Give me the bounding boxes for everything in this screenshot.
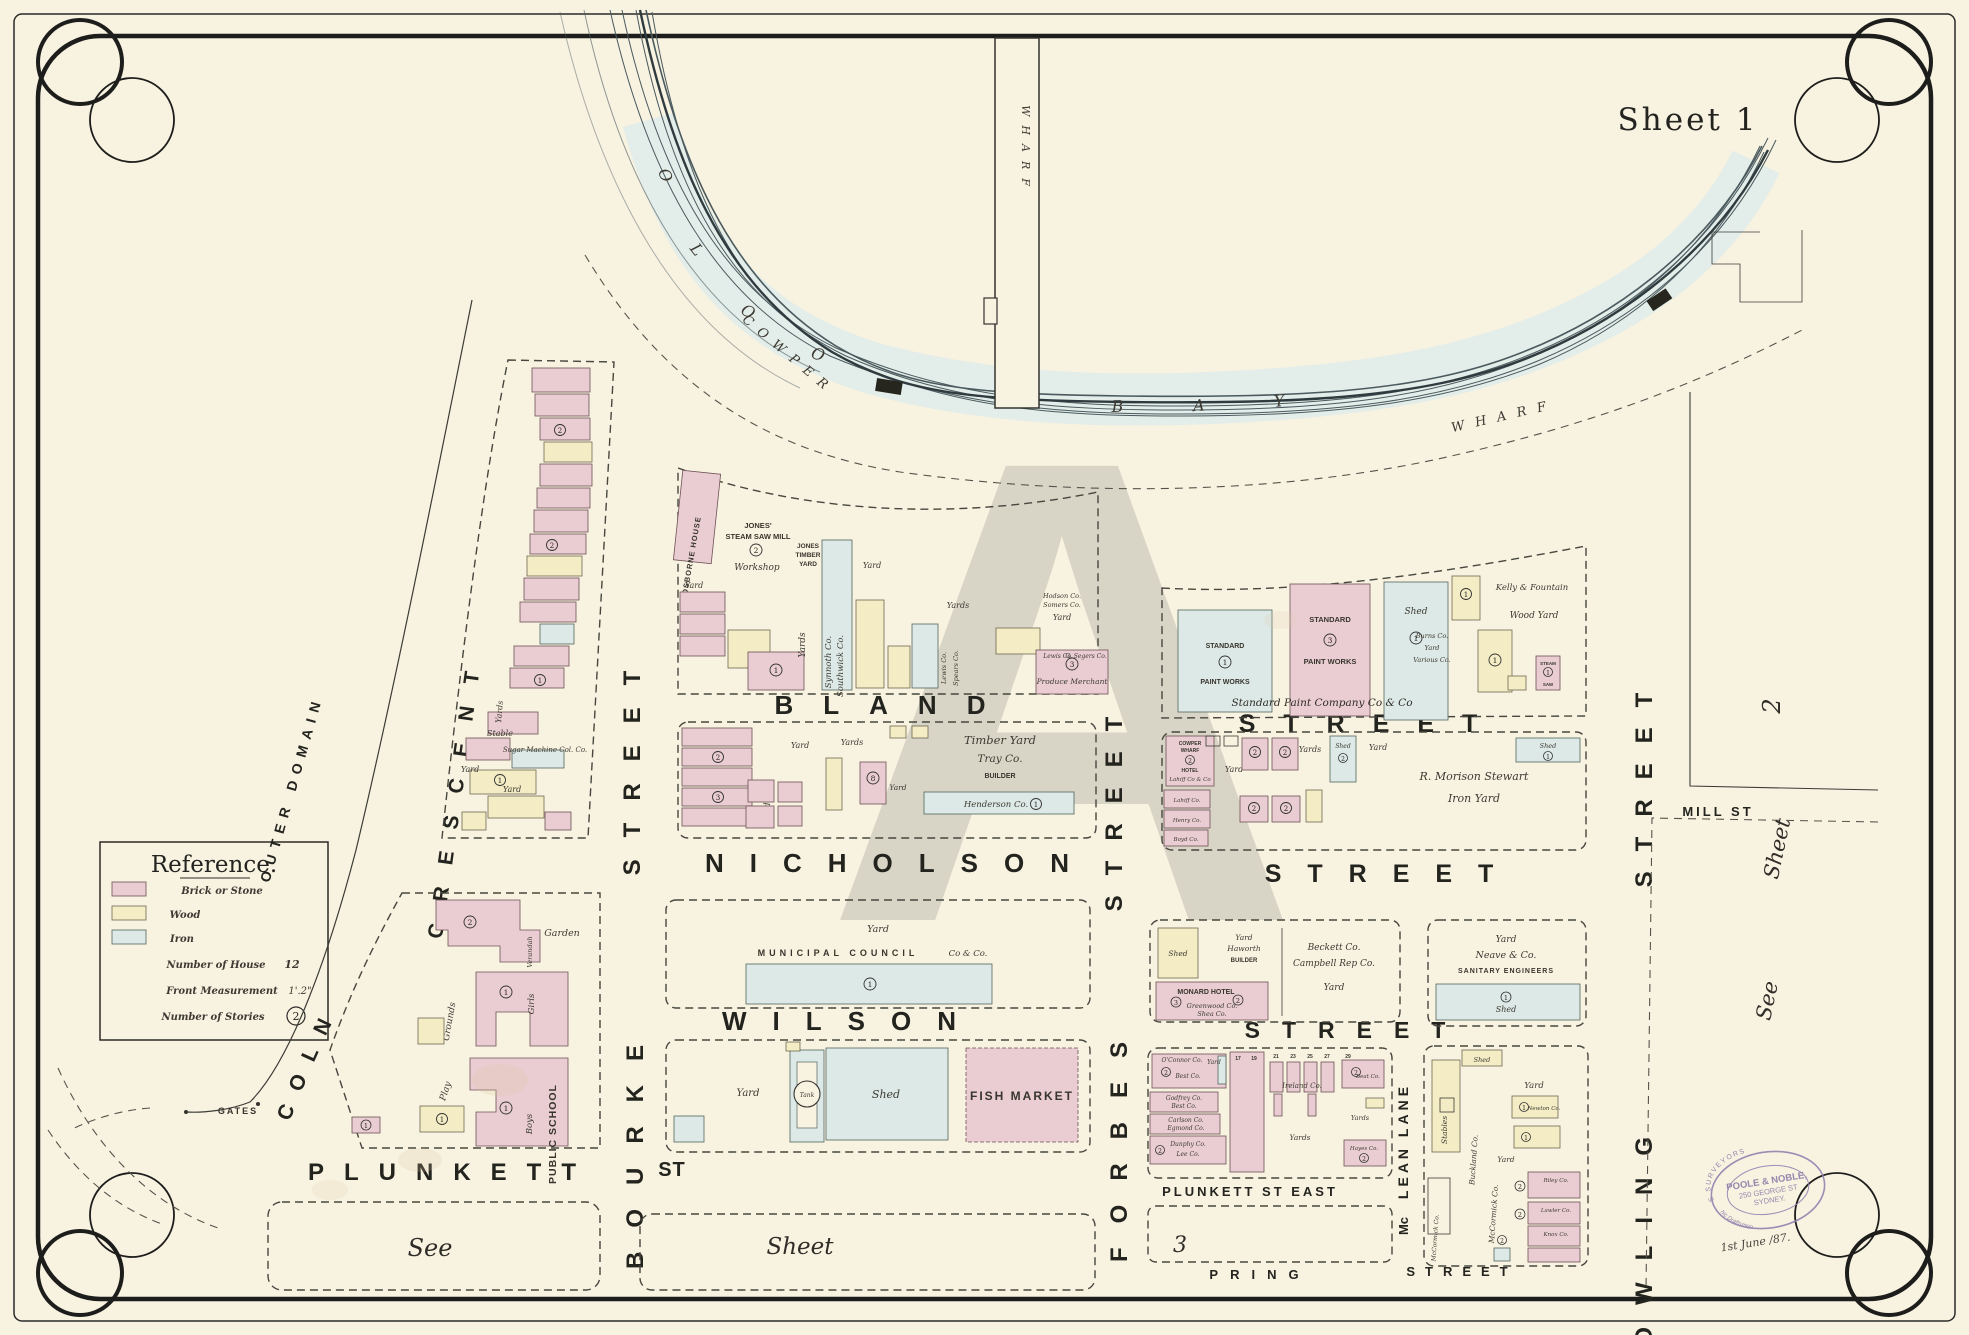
standard-pink-2: PAINT WORKS [1304, 657, 1357, 666]
jones-mill-label1: JONES' [744, 521, 771, 530]
hayes-label: Hayes Co. [1349, 1146, 1378, 1152]
svg-text:2: 2 [1252, 805, 1256, 813]
fish-market-label: FISH MARKET [970, 1089, 1074, 1103]
svg-text:1: 1 [1493, 656, 1498, 665]
steam-saw-label2: SAW [1543, 682, 1554, 687]
shea-label: Shea Co. [1197, 1010, 1226, 1018]
egmond-label: Egmond Co. [1166, 1125, 1204, 1132]
svg-text:1: 1 [774, 666, 779, 675]
boyd-label: Boyd Co. [1173, 837, 1199, 843]
yard-label: Yard [1425, 644, 1440, 652]
plunkett-east-block: O'Connor Co. Yard 2 Best Co. Godfrey Co.… [1148, 1048, 1392, 1178]
campbell-label: Campbell Rep Co. [1293, 959, 1375, 969]
sheet-title: Sheet 1 [1618, 102, 1759, 138]
svg-text:1: 1 [504, 988, 509, 997]
svg-text:1: 1 [1546, 670, 1550, 677]
sheet-east-label: Sheet [1759, 816, 1795, 881]
municipal-council-label: MUNICIPAL COUNCIL [758, 948, 919, 958]
svg-text:2: 2 [1518, 1183, 1522, 1191]
street-label-bourke-street: STREET [619, 649, 646, 876]
lewis-rot-label: Lewis Co. [940, 652, 948, 685]
yard-label: Yard [1324, 983, 1345, 993]
street-label-pring: PRING [1209, 1267, 1310, 1282]
yard-label: Yard [737, 1088, 760, 1099]
svg-text:1: 1 [1524, 1135, 1528, 1142]
southwick-label: Southwick Co. [836, 635, 846, 697]
yard-label: Yard [503, 785, 521, 794]
crescent-plots [462, 368, 592, 830]
house-number: 21 [1273, 1054, 1279, 1060]
jones-timber-label1: JONES [797, 543, 820, 550]
neave-block: Yard Neave & Co. SANITARY ENGINEERS 1 Sh… [1428, 920, 1586, 1026]
produce-merchant-label: Produce Merchant [1036, 677, 1109, 686]
yard-label: Yard [1207, 1059, 1221, 1066]
standard-blue-1: STANDARD [1206, 643, 1245, 650]
corner-ornament-top-left [38, 20, 174, 162]
house-number: 27 [1324, 1054, 1330, 1060]
carlson-label: Carlson Co. [1168, 1117, 1204, 1124]
shed-label: Shed [1404, 607, 1427, 617]
yards-label: Yards [841, 738, 863, 747]
street-label-mill-st: MILL ST [1682, 804, 1753, 819]
legend-front-val: 1'.2" [288, 986, 311, 997]
svg-text:1: 1 [1504, 994, 1508, 1002]
shed-label: Shed [872, 1088, 900, 1101]
cowper-hotel-label3: HOTEL [1182, 768, 1199, 774]
svg-text:2: 2 [754, 546, 759, 555]
svg-text:1: 1 [538, 677, 542, 685]
see-east-label: See [1751, 979, 1783, 1022]
newton-label: Newton Co. [1527, 1106, 1561, 1112]
svg-text:2: 2 [716, 754, 720, 762]
street-label-pring-street: STREET [1406, 1264, 1517, 1279]
svg-text:1: 1 [498, 777, 502, 785]
tank-label: Tank [800, 1092, 815, 1099]
legend-swatch-wood [112, 906, 146, 920]
legend-house-label: Number of House [166, 960, 266, 971]
street-label-mclean-lane: LANE [1395, 1083, 1411, 1137]
shed-label: Shed [1540, 742, 1557, 750]
svg-text:2: 2 [1518, 1211, 1522, 1219]
crescent-block: 2 2 1 1 Stable Sugar Machine Col. Co. Ya… [442, 360, 614, 838]
morrison-stewart-label: R. Morison Stewart [1419, 770, 1529, 783]
svg-text:2: 2 [1283, 749, 1287, 757]
svg-text:2: 2 [1253, 749, 1257, 757]
standard-pink-1: STANDARD [1309, 615, 1351, 624]
wood-yard-label: Wood Yard [1510, 611, 1559, 621]
svg-text:1: 1 [1522, 1105, 1526, 1112]
pier-wharf-label: WHARF [1019, 105, 1032, 195]
haworth-label: Haworth [1226, 944, 1261, 953]
public-school-block: 2 Verandah Garden Grounds Play 1 1 Girls… [330, 893, 600, 1184]
somers-label: Somers Co. [1043, 601, 1081, 609]
svg-text:2: 2 [1158, 1148, 1162, 1155]
stamp-date: 1st June /87. [1720, 1231, 1792, 1255]
yard-label: Yard [1496, 935, 1517, 945]
wharf-road-label: WHARF [1450, 397, 1559, 436]
best-label: Best Co. [1174, 1073, 1200, 1080]
iron-yard-label: Iron Yard [1447, 792, 1500, 805]
svg-text:8: 8 [871, 774, 876, 783]
best2-label: Best Co. [1170, 1103, 1196, 1110]
svg-text:2: 2 [1362, 1156, 1366, 1163]
street-label-dowling: DOWLING [1631, 1115, 1658, 1335]
shed-label: Shed [1335, 743, 1351, 750]
public-school-label: PUBLIC SCHOOL [547, 1084, 559, 1184]
yards-label: Yards [1351, 1114, 1370, 1122]
mccormick-label: McCormick Co. [1487, 1184, 1500, 1244]
svg-text:2: 2 [1164, 1070, 1168, 1077]
reference-legend: Reference. Brick or Stone Wood Iron Numb… [100, 842, 328, 1040]
street-label-mclean-mc: Mc [1396, 1217, 1411, 1235]
shed-label: Shed [1168, 949, 1187, 958]
oconnor-label: O'Connor Co. [1162, 1057, 1203, 1064]
play-label: Play [438, 1080, 454, 1103]
street-label-wilson-street: STREET [1245, 1017, 1468, 1043]
yard-label: Yard [1053, 613, 1071, 622]
godfrey-label: Godfrey Co. [1166, 1095, 1202, 1102]
cowper-hotel-label1: COWPER [1179, 741, 1202, 747]
house-number: 29 [1345, 1054, 1351, 1060]
street-label-forbes: FORBES [1106, 1018, 1133, 1262]
dunphy-label: Dunphy Co. [1169, 1141, 1206, 1148]
two-label: 2 [1758, 698, 1786, 714]
hodson-label: Hodson Co. [1042, 592, 1081, 600]
street-label-plunkett-st: ST [658, 1159, 686, 1181]
house-number: 23 [1290, 1054, 1296, 1060]
street-label-wilson: WILSON [722, 1006, 982, 1036]
svg-text:1: 1 [364, 1122, 368, 1130]
builder-label: BUILDER [984, 773, 1015, 780]
lawler-label: Lawler Co. [1540, 1208, 1571, 1214]
sheet-west-label: Sheet [766, 1234, 834, 1260]
mclean-east-block: Shed Stables Buckland Co. McCormick Co. … [1424, 1046, 1588, 1266]
riley-label: Riley Co. [1543, 1178, 1569, 1184]
sugar-machine-label: Sugar Machine Col. Co. [503, 746, 587, 754]
timber-yard-label: Timber Yard [964, 733, 1036, 747]
legend-front-label: Front Measurement [165, 986, 278, 997]
svg-text:2: 2 [1500, 1238, 1504, 1245]
yard-label: Yard [863, 561, 881, 570]
legend-house-num: 12 [284, 958, 300, 971]
mccormick-small-label: McCormick Co. [1430, 1214, 1440, 1263]
svg-text:2: 2 [468, 918, 473, 927]
svg-text:2: 2 [558, 427, 562, 435]
yard-label: Yard [1524, 1081, 1544, 1091]
tray-co-label: Tray Co. [977, 753, 1022, 765]
svg-text:1: 1 [1223, 658, 1228, 667]
yards-label: Yards [1299, 745, 1321, 754]
builder-label: BUILDER [1231, 958, 1258, 964]
legend-iron-label: Iron [169, 934, 194, 945]
svg-text:1: 1 [1546, 754, 1550, 761]
yard-label: Yard [1235, 933, 1252, 942]
street-label-dowling-street: STREET [1631, 673, 1658, 888]
henry-label: Henry Co. [1172, 818, 1202, 824]
house-number: 19 [1251, 1056, 1257, 1062]
monard-hotel-label: MONARD HOTEL [1177, 989, 1235, 996]
segers-label: G. Segers Co. [1065, 653, 1106, 660]
street-label-nicholson: NICHOLSON [705, 848, 1095, 878]
henderson-label: Henderson Co. [963, 800, 1028, 810]
lee-label: Lee Co. [1176, 1151, 1200, 1158]
spears-rot-label: Spears Co. [952, 650, 960, 686]
svg-text:2: 2 [1341, 756, 1345, 763]
neave-label: Neave & Co. [1475, 950, 1537, 961]
map-sheet: A WHARF WOOLLOOMOOLOO BAY COWPER WHARF S… [0, 0, 1969, 1335]
yard-label: Yard [685, 581, 703, 590]
svg-text:3: 3 [1174, 999, 1178, 1007]
jones-timber-label3: YARD [799, 561, 817, 568]
svg-text:1: 1 [504, 1104, 509, 1113]
sanitary-engineers-label: SANITARY ENGINEERS [1458, 968, 1554, 975]
standard-blue-2: PAINT WORKS [1200, 679, 1250, 686]
municipal-co-label: Co & Co. [949, 949, 988, 959]
house-number: 25 [1307, 1054, 1313, 1060]
lahiff-label: Lahiff Co & Co [1168, 777, 1211, 783]
beckett-label: Beckett Co. [1307, 943, 1361, 953]
see-west-label: See [408, 1234, 453, 1262]
legend-swatch-brick [112, 882, 146, 896]
street-label-forbes-street: STREET [1101, 697, 1128, 912]
svg-text:3: 3 [1328, 636, 1333, 645]
map-canvas: A WHARF WOOLLOOMOOLOO BAY COWPER WHARF S… [0, 0, 1969, 1335]
various-label: Various Co. [1413, 656, 1451, 664]
corner-ornament-bottom-right [1795, 1173, 1931, 1315]
svg-text:3: 3 [1070, 660, 1075, 669]
shed-label: Shed [1474, 1056, 1491, 1064]
lahiff2-label: Lahiff Co. [1172, 798, 1200, 804]
street-label-plunkett-east: PLUNKETT ST EAST [1162, 1184, 1338, 1199]
beat-label: Beat Co. [1355, 1074, 1380, 1080]
girls-label: Girls [527, 993, 537, 1014]
boys-label: Boys [525, 1113, 535, 1135]
street-label-mclean-lean: LEAN [1395, 1145, 1411, 1199]
svg-text:2: 2 [1188, 758, 1192, 765]
legend-swatch-iron [112, 930, 146, 944]
garden-label: Garden [544, 928, 580, 939]
yards-label: Yards [947, 601, 969, 610]
knox-label: Knox Co. [1543, 1232, 1569, 1238]
svg-text:2: 2 [1284, 805, 1288, 813]
house-number: 17 [1235, 1056, 1241, 1062]
yard-label: Yard [1225, 765, 1243, 774]
stable-label: Stable [487, 729, 513, 738]
stables-label: Stables [1440, 1116, 1449, 1144]
svg-text:1: 1 [1464, 591, 1468, 599]
legend-wood-label: Wood [170, 910, 201, 921]
svg-text:3: 3 [716, 794, 720, 802]
street-label-bland-street: STREET [1239, 710, 1506, 738]
fish-market-block: Yard Tank Shed FISH MARKET [666, 1040, 1090, 1152]
yard-label: Yard [867, 924, 889, 935]
legend-stories-val: 2 [293, 1010, 300, 1023]
shed-label: Shed [1496, 1005, 1517, 1014]
ireland-label: Ireland Co. [1281, 1082, 1322, 1090]
legend-stories-label: Number of Stories [160, 1012, 264, 1023]
three-label: 3 [1173, 1233, 1187, 1258]
synnoth-label: Synnoth Co. [824, 636, 834, 688]
burns-label: Burns Co. [1415, 632, 1449, 640]
corner-ornament-top-right [1795, 20, 1931, 162]
corner-ornament-bottom-left [38, 1173, 174, 1315]
cowper-hotel-label2: WHARF [1181, 748, 1200, 754]
yards-label: Yards [1289, 1133, 1310, 1142]
gates-label: GATES [218, 1106, 258, 1116]
steam-saw-label1: STEAM [1540, 661, 1556, 666]
street-label-nicholson-street: STREET [1265, 860, 1520, 888]
jones-mill-label2: STEAM SAW MILL [726, 532, 791, 541]
greenwood-label: Greenwood Co. [1187, 1002, 1238, 1010]
legend-brick-label: Brick or Stone [180, 886, 263, 897]
yard-label: Yard [1369, 743, 1387, 752]
yard-label: Yard [1497, 1155, 1514, 1164]
yard-label: Yard [791, 741, 809, 750]
standard-script-label: Standard Paint Company Co & Co [1231, 697, 1412, 709]
jones-timber-label2: TIMBER [796, 552, 821, 559]
svg-text:1: 1 [1034, 801, 1038, 809]
svg-text:1: 1 [868, 980, 873, 989]
yards-label: Yards [798, 632, 808, 658]
yard-label: Yard [461, 765, 479, 774]
street-label-bourke: BOURKE [622, 1021, 649, 1269]
buckland-label: Buckland Co. [1467, 1134, 1480, 1186]
workshop-label: Workshop [734, 563, 780, 573]
svg-text:1: 1 [440, 1116, 444, 1124]
verandah-label: Verandah [526, 936, 534, 967]
kelly-fountain-label: Kelly & Fountain [1495, 583, 1569, 593]
yard-label: Yard [889, 783, 906, 792]
svg-text:2: 2 [550, 542, 554, 550]
